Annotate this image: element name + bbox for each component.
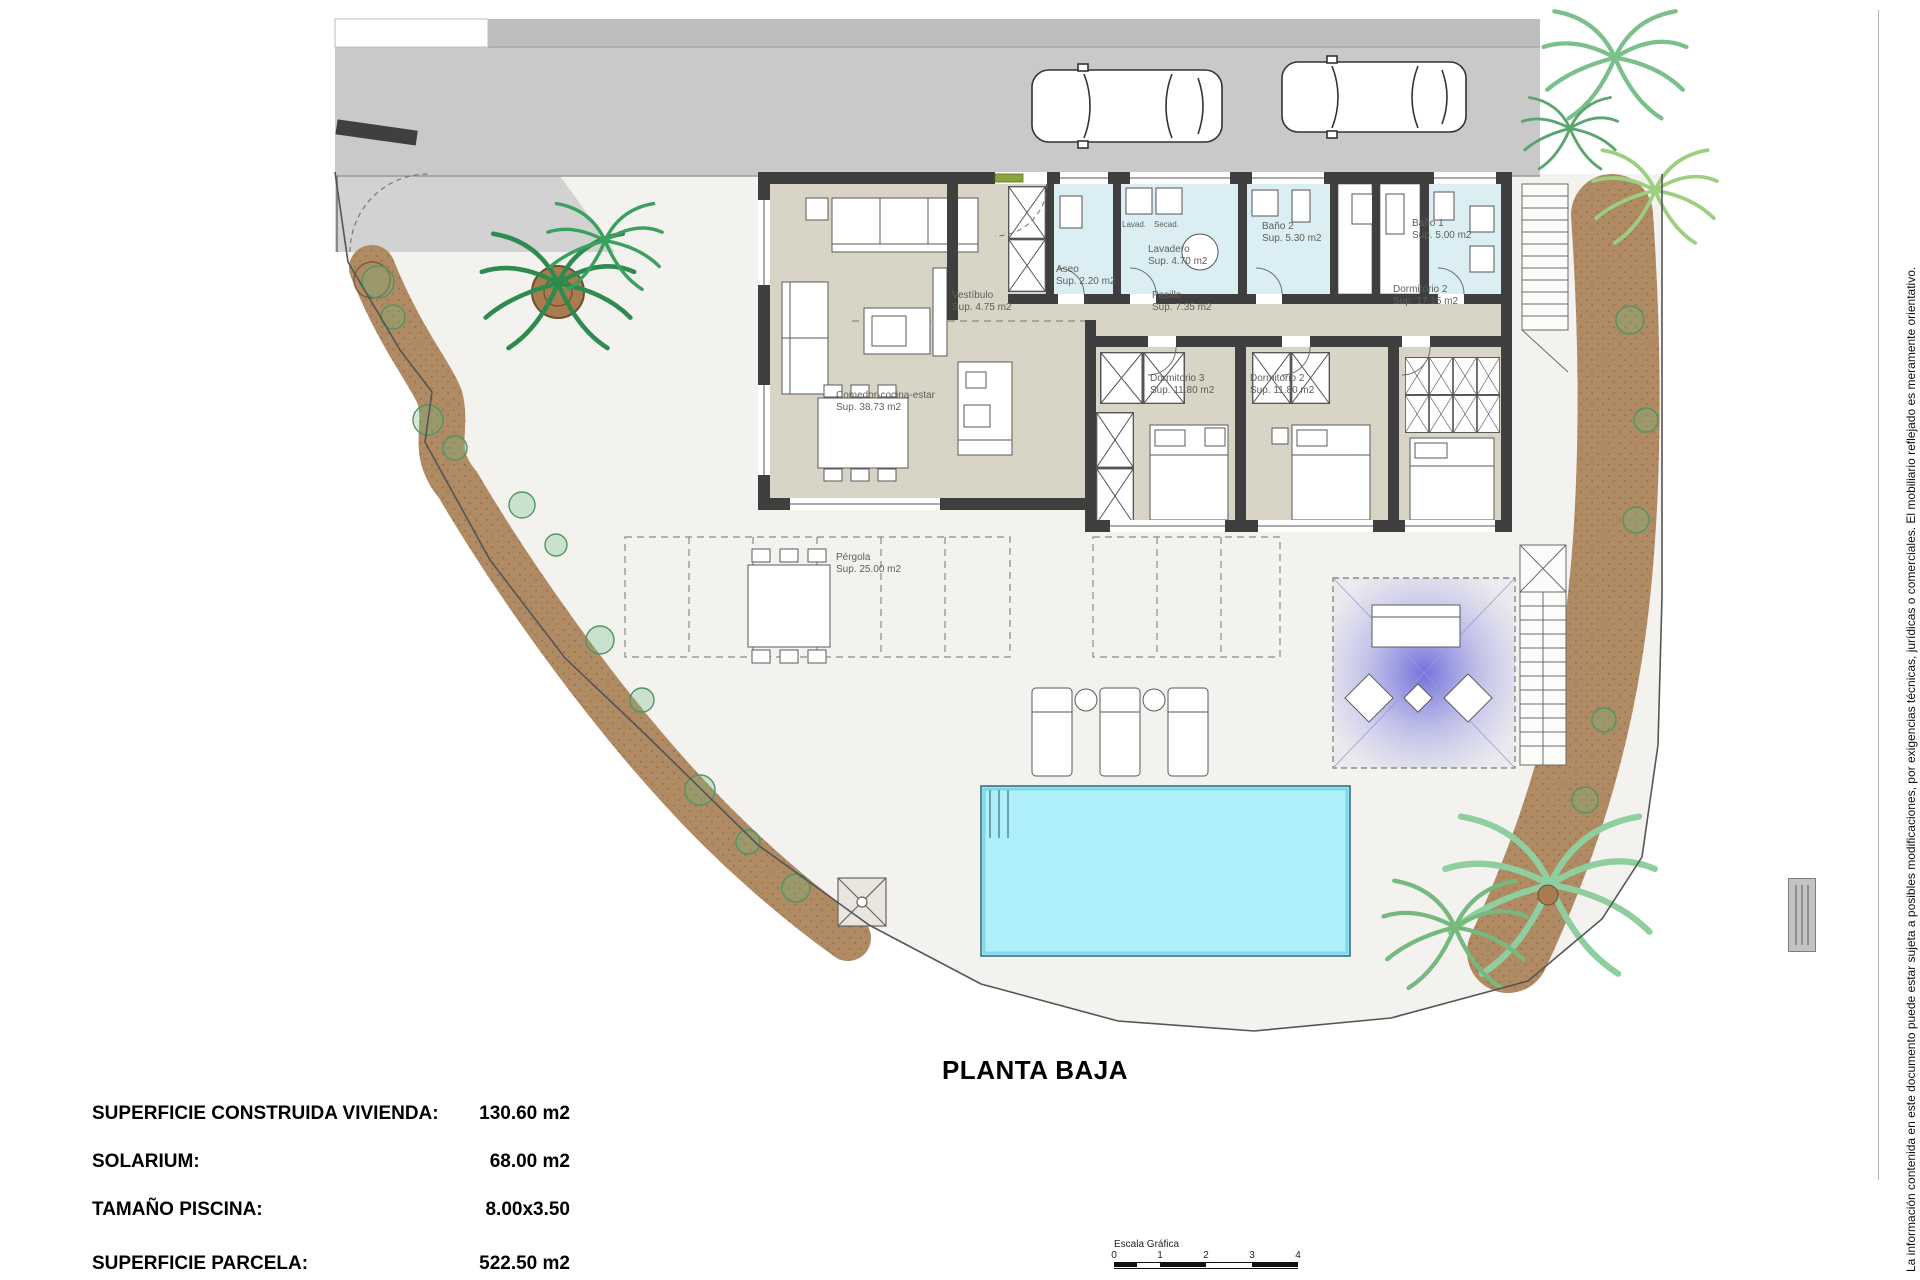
info-value: 68.00 m2 — [490, 1152, 570, 1171]
washer-label: Lavad. — [1122, 221, 1146, 229]
graphic-scale: Escala Gráfica 0 1 2 3 4 — [1114, 1239, 1298, 1269]
plan-title: PLANTA BAJA — [905, 1056, 1165, 1085]
info-row-construida: SUPERFICIE CONSTRUIDA VIVIENDA: 130.60 m… — [92, 1104, 570, 1123]
scale-tick: 0 — [1111, 1250, 1117, 1261]
scale-bar-segments — [1114, 1262, 1298, 1269]
room-label-lavadero: Lavadero Sup. 4.70 m2 — [1148, 244, 1207, 267]
info-label: SUPERFICIE PARCELA: — [92, 1253, 308, 1274]
solarium-stairs — [1520, 545, 1566, 765]
room-label-dormitorio2-mid: Dormitorio 2 Sup. 11.80 m2 — [1250, 373, 1314, 396]
scale-tick: 3 — [1249, 1250, 1255, 1261]
scale-caption: Escala Gráfica — [1114, 1239, 1298, 1250]
info-row-solarium: SOLARIUM: 68.00 m2 — [92, 1152, 570, 1171]
room-name: Aseo — [1056, 264, 1115, 276]
developer-tag — [1788, 878, 1816, 952]
info-label: TAMAÑO PISCINA: — [92, 1199, 263, 1220]
room-name: Lavadero — [1148, 244, 1207, 256]
swimming-pool — [981, 786, 1350, 956]
room-sup: Sup. 11.80 m2 — [1150, 385, 1214, 397]
room-sup: Sup. 25.00 m2 — [836, 564, 901, 576]
dryer-label: Secad. — [1154, 221, 1179, 229]
room-name: Comedor-cocina-estar — [836, 390, 935, 402]
room-label-dormitorio-master: Dormitorio 2 Sup. 17.15 m2 — [1393, 284, 1458, 307]
car-2 — [1282, 56, 1466, 138]
room-sup: Sup. 11.80 m2 — [1250, 385, 1314, 397]
room-label-pasillo: Pasillo Sup. 7.35 m2 — [1152, 290, 1211, 313]
room-name: Dormitorio 2 — [1250, 373, 1314, 385]
info-label: SUPERFICIE CONSTRUIDA VIVIENDA: — [92, 1103, 439, 1124]
floor-plan-page: Comedor-cocina-estar Sup. 38.73 m2 Vestí… — [0, 0, 1920, 1280]
room-sup: Sup. 4.70 m2 — [1148, 256, 1207, 268]
room-sup: Sup. 4.75 m2 — [952, 302, 1011, 314]
room-name: Dormitorio 2 — [1393, 284, 1458, 296]
outdoor-shower-pad — [838, 878, 886, 926]
room-label-comedor: Comedor-cocina-estar Sup. 38.73 m2 — [836, 390, 935, 413]
room-name: Dormitorio 3 — [1150, 373, 1214, 385]
room-sup: Sup. 7.35 m2 — [1152, 302, 1211, 314]
sun-loungers — [1032, 688, 1208, 776]
scale-ticks: 0 1 2 3 4 — [1114, 1250, 1298, 1262]
room-name: Baño 1 — [1412, 218, 1471, 230]
legal-disclaimer: La información contenida en este documen… — [1904, 0, 1918, 1278]
beds — [1150, 425, 1494, 520]
scale-tick: 1 — [1157, 1250, 1163, 1261]
info-label: SOLARIUM: — [92, 1151, 200, 1172]
room-name: Vestíbulo — [952, 290, 1011, 302]
room-name: Pérgola — [836, 552, 901, 564]
entrance-door-leaf — [995, 174, 1023, 182]
scale-tick: 2 — [1203, 1250, 1209, 1261]
info-value: 8.00x3.50 — [485, 1200, 570, 1219]
room-label-bano2: Baño 2 Sup. 5.30 m2 — [1262, 221, 1321, 244]
info-row-piscina: TAMAÑO PISCINA: 8.00x3.50 — [92, 1200, 570, 1219]
room-name: Pasillo — [1152, 290, 1211, 302]
room-name: Baño 2 — [1262, 221, 1321, 233]
info-value: 522.50 m2 — [479, 1254, 570, 1273]
solarium-lounge — [1333, 578, 1515, 768]
info-value: 130.60 m2 — [479, 1104, 570, 1123]
room-sup: Sup. 2.20 m2 — [1056, 276, 1115, 288]
room-label-dormitorio3: Dormitorio 3 Sup. 11.80 m2 — [1150, 373, 1214, 396]
info-row-parcela: SUPERFICIE PARCELA: 522.50 m2 — [92, 1254, 570, 1273]
room-sup: Sup. 5.00 m2 — [1412, 230, 1471, 242]
margin-rule — [1878, 10, 1879, 1180]
floor-plan-drawing — [0, 0, 1920, 1280]
car-1 — [1032, 64, 1222, 148]
room-label-vestibulo: Vestíbulo Sup. 4.75 m2 — [952, 290, 1011, 313]
room-sup: Sup. 17.15 m2 — [1393, 296, 1458, 308]
room-label-aseo: Aseo Sup. 2.20 m2 — [1056, 264, 1115, 287]
room-sup: Sup. 5.30 m2 — [1262, 233, 1321, 245]
terrace-dining-set — [748, 549, 830, 663]
room-sup: Sup. 38.73 m2 — [836, 402, 935, 414]
room-label-pergola: Pérgola Sup. 25.00 m2 — [836, 552, 901, 575]
room-label-bano1: Baño 1 Sup. 5.00 m2 — [1412, 218, 1471, 241]
scale-tick: 4 — [1295, 1250, 1301, 1261]
